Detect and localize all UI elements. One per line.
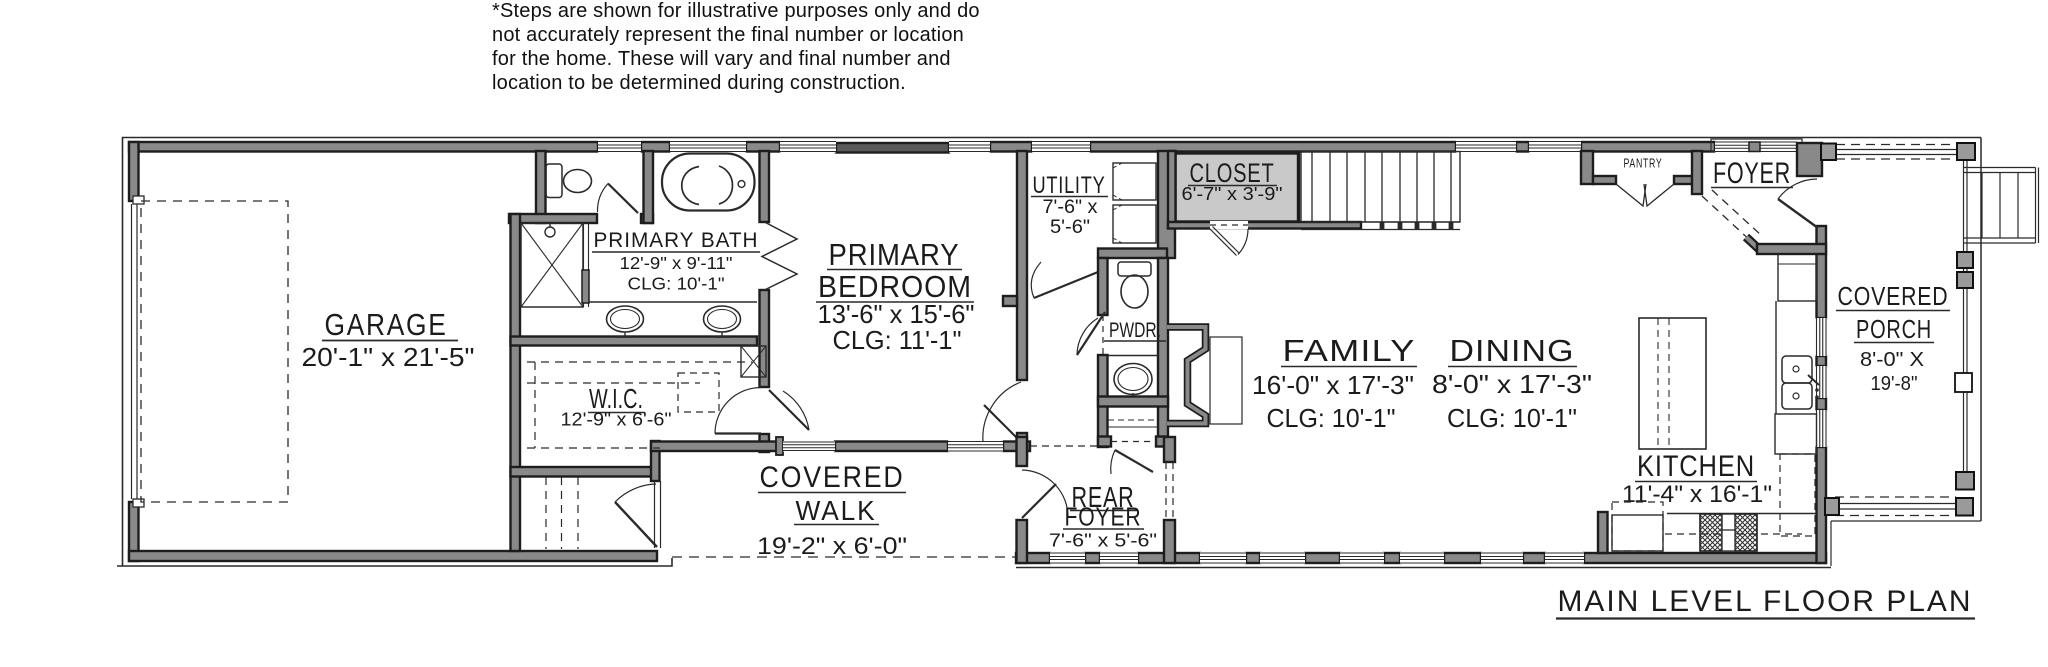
- svg-text:*Steps are shown for illustrat: *Steps are shown for illustrative purpos…: [492, 0, 980, 22]
- svg-text:FAMILY: FAMILY: [1283, 333, 1416, 368]
- svg-text:COVERED: COVERED: [760, 461, 905, 494]
- svg-text:GARAGE: GARAGE: [325, 307, 448, 342]
- svg-text:WALK: WALK: [796, 495, 877, 526]
- svg-text:PRIMARY: PRIMARY: [829, 237, 960, 272]
- svg-text:KITCHEN: KITCHEN: [1637, 450, 1755, 483]
- svg-text:12'-9" x 9'-11": 12'-9" x 9'-11": [620, 253, 733, 273]
- svg-text:CLG: 10'-1": CLG: 10'-1": [628, 274, 725, 294]
- svg-text:7'-6" x: 7'-6" x: [1043, 197, 1099, 218]
- svg-text:FOYER: FOYER: [1065, 502, 1142, 532]
- svg-text:11'-4" x 16'-1": 11'-4" x 16'-1": [1622, 481, 1772, 508]
- svg-text:CLG: 11'-1": CLG: 11'-1": [833, 325, 962, 355]
- svg-text:PORCH: PORCH: [1856, 314, 1932, 344]
- svg-text:PRIMARY BATH: PRIMARY BATH: [594, 228, 759, 252]
- svg-text:DINING: DINING: [1450, 333, 1575, 368]
- svg-text:location to be determined duri: location to be determined during constru…: [492, 72, 906, 94]
- svg-text:for the home. These will vary: for the home. These will vary and final …: [492, 48, 951, 70]
- svg-text:7'-6" x 5'-6": 7'-6" x 5'-6": [1049, 531, 1157, 551]
- svg-text:MAIN LEVEL FLOOR PLAN: MAIN LEVEL FLOOR PLAN: [1558, 585, 1973, 618]
- svg-text:8'-0" x 17'-3": 8'-0" x 17'-3": [1432, 369, 1592, 399]
- svg-text:20'-1" x 21'-5": 20'-1" x 21'-5": [302, 342, 475, 372]
- svg-text:not accurately represent the f: not accurately represent the final numbe…: [492, 24, 964, 46]
- svg-text:COVERED: COVERED: [1838, 281, 1949, 311]
- svg-text:PANTRY: PANTRY: [1624, 157, 1663, 171]
- svg-text:16'-0" x 17'-3": 16'-0" x 17'-3": [1252, 370, 1414, 400]
- svg-text:6'-7" x 3'-9": 6'-7" x 3'-9": [1182, 184, 1283, 204]
- svg-text:19'-2" x 6'-0": 19'-2" x 6'-0": [757, 533, 907, 560]
- svg-text:PWDR.: PWDR.: [1109, 319, 1161, 342]
- svg-text:12'-9" x 6'-6": 12'-9" x 6'-6": [561, 410, 672, 430]
- svg-text:CLG: 10'-1": CLG: 10'-1": [1447, 403, 1577, 433]
- svg-text:5'-6": 5'-6": [1050, 217, 1090, 238]
- svg-text:19'-8": 19'-8": [1871, 373, 1918, 395]
- svg-text:FOYER: FOYER: [1713, 157, 1791, 190]
- svg-text:CLG: 10'-1": CLG: 10'-1": [1267, 403, 1396, 433]
- svg-text:UTILITY: UTILITY: [1033, 172, 1106, 199]
- svg-text:8'-0" X: 8'-0" X: [1860, 349, 1924, 371]
